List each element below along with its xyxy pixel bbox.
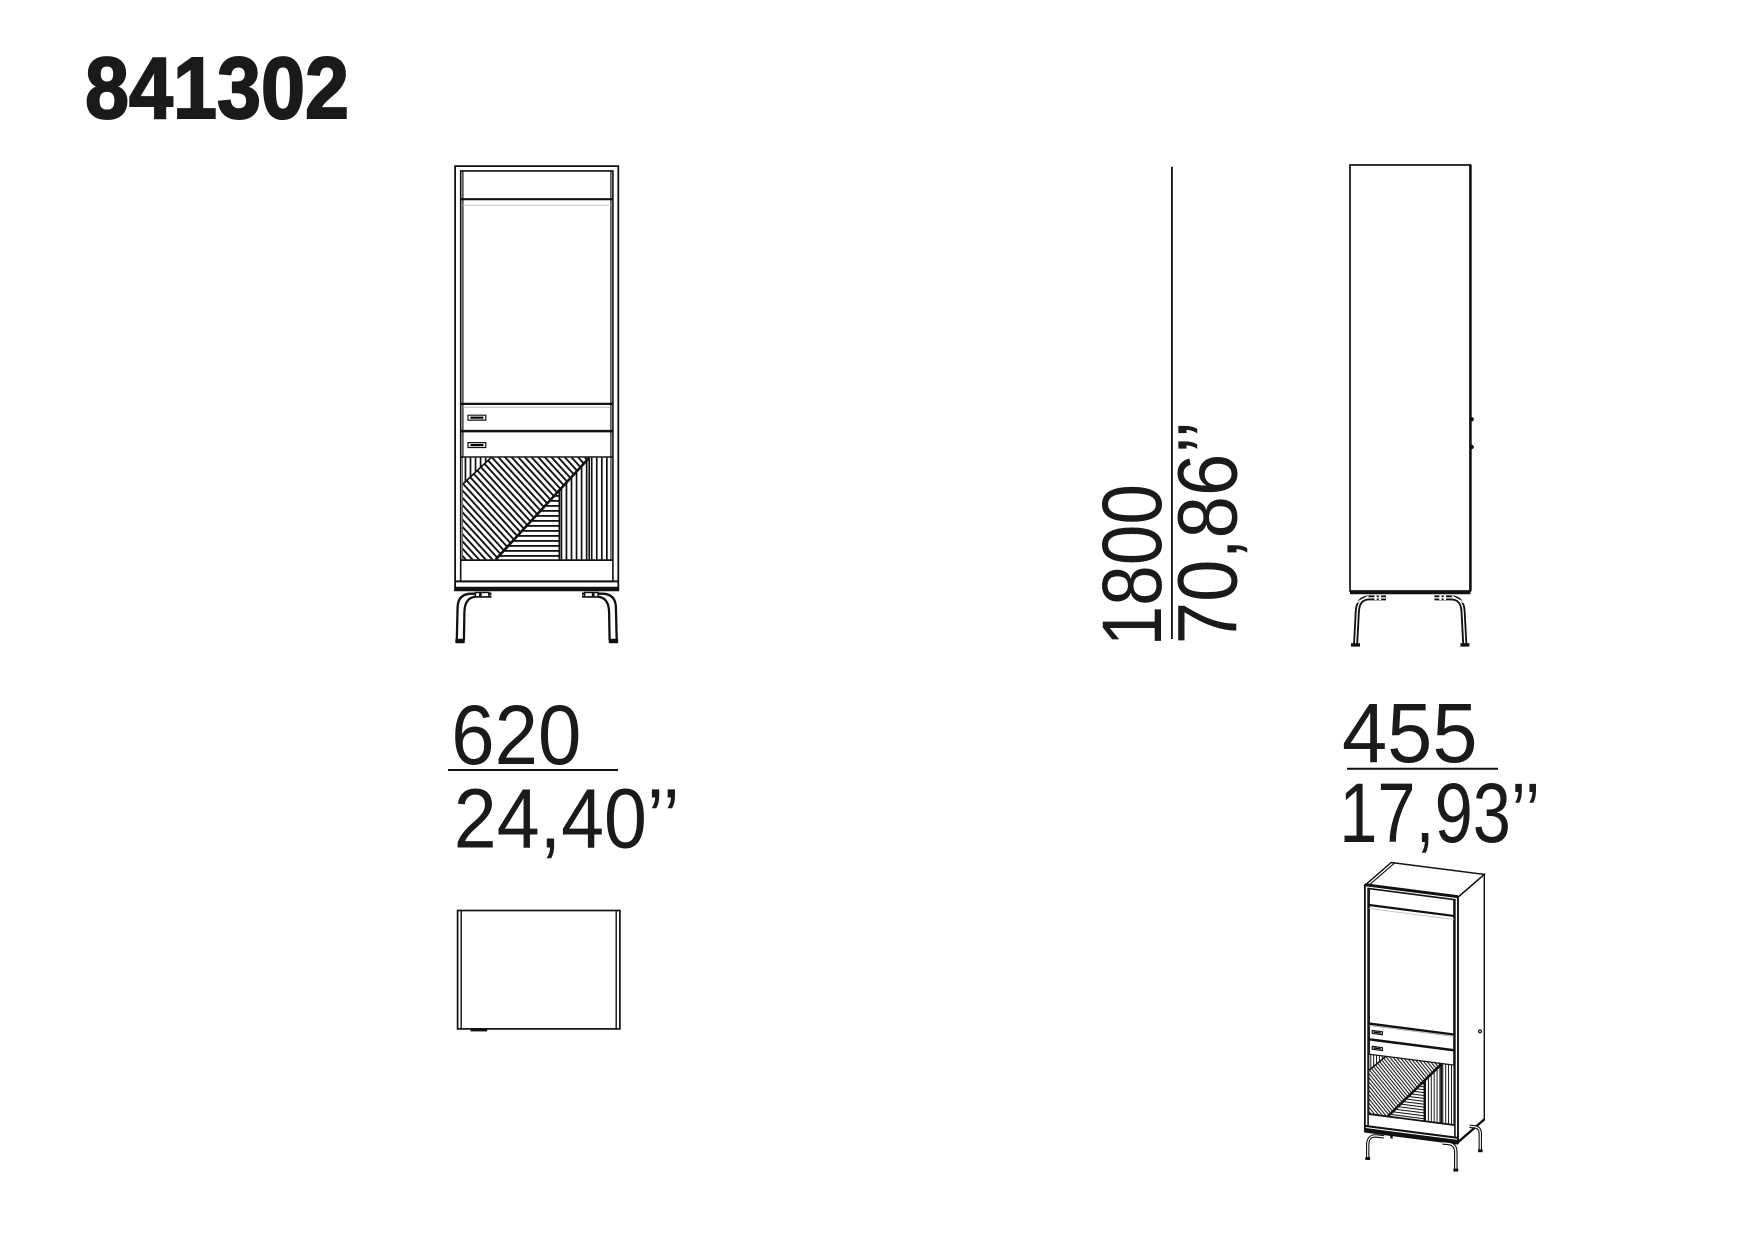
svg-text:70,86’’: 70,86’’ [1161,421,1255,644]
svg-text:841302: 841302 [85,40,349,137]
svg-text:24,40’’: 24,40’’ [454,772,680,866]
svg-text:620: 620 [451,688,581,782]
svg-text:17,93’’: 17,93’’ [1339,766,1540,860]
